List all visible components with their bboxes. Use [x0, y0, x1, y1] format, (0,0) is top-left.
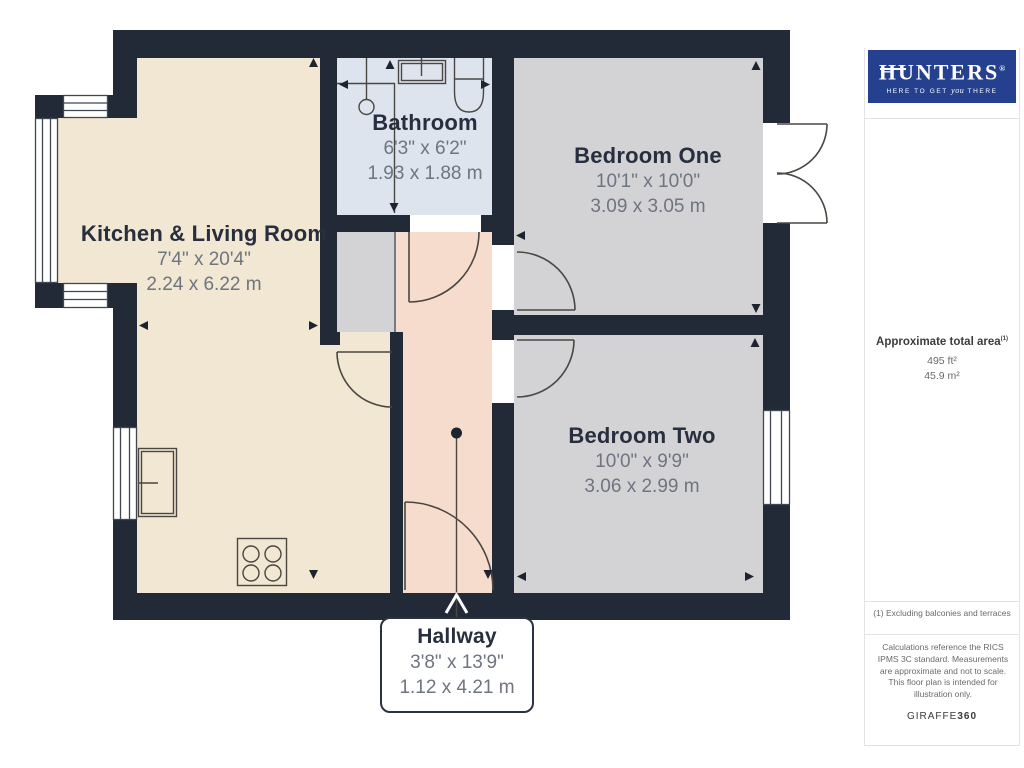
registered-mark-icon: ® — [999, 64, 1005, 73]
room-name: Bathroom — [367, 110, 482, 136]
room-size-imperial: 10'0" x 9'9" — [568, 449, 715, 474]
bay-window-top — [63, 95, 108, 118]
wall-bedrooms-left-lower — [492, 403, 514, 593]
room-label-bedroom-one: Bedroom One 10'1" x 10'0" 3.09 x 3.05 m — [574, 143, 722, 219]
wall-bathroom-bottom-left — [320, 215, 410, 232]
room-size-metric: 3.09 x 3.05 m — [574, 194, 722, 219]
room-size-metric: 1.93 x 1.88 m — [367, 161, 482, 186]
room-name: Hallway — [382, 623, 532, 650]
wall-right-middle — [763, 223, 790, 410]
area-summary: Approximate total area(1) 495 ft² 45.9 m… — [865, 332, 1019, 385]
logo-text: HUNTERS — [879, 59, 999, 84]
bay-window-left — [35, 118, 58, 283]
wall-top — [113, 30, 790, 58]
wall-bedrooms-left-upper — [492, 58, 514, 245]
room-name: Bedroom Two — [568, 423, 715, 449]
logo-tagline: HERE TO GET you THERE — [868, 86, 1016, 95]
area-imperial: 495 ft² — [865, 354, 1019, 370]
room-size-metric: 2.24 x 6.22 m — [81, 272, 327, 297]
footnote-text: (1) Excluding balconies and terraces — [869, 606, 1015, 620]
wall-hallway-left — [390, 345, 403, 593]
area-heading: Approximate total area(1) — [865, 332, 1019, 349]
room-size-imperial: 3'8" x 13'9" — [382, 650, 532, 675]
floor-plan: Kitchen & Living Room 7'4" x 20'4" 2.24 … — [0, 0, 860, 768]
room-label-bathroom: Bathroom 6'3" x 6'2" 1.93 x 1.88 m — [367, 110, 482, 186]
area-heading-text: Approximate total area — [876, 336, 1001, 348]
kitchen-floor-lower — [137, 345, 390, 593]
wall-bottom — [113, 593, 790, 620]
divider — [865, 601, 1019, 602]
wall-kitchen-door-left-stub — [320, 332, 340, 345]
tagline-script: you — [951, 86, 964, 95]
room-size-imperial: 10'1" x 10'0" — [574, 169, 722, 194]
giraffe360-credit: GIRAFFE360 — [865, 710, 1019, 724]
wall-between-bedrooms — [514, 315, 763, 335]
tagline-pre: HERE TO GET — [886, 88, 947, 95]
hallway-floor-upper — [395, 232, 492, 345]
room-size-imperial: 7'4" x 20'4" — [81, 247, 327, 272]
wall-left-middle — [113, 308, 137, 427]
wall-left-upper — [113, 58, 137, 95]
kitchen-window — [113, 427, 137, 520]
bay-corner-top-left — [35, 95, 63, 118]
bedroom-one-french-door-opening — [763, 123, 790, 223]
bay-corner-top-right — [108, 95, 137, 118]
wall-bedrooms-left-middle — [492, 310, 514, 340]
divider — [865, 634, 1019, 635]
credit-brand: GIRAFFE — [907, 711, 957, 722]
room-size-metric: 1.12 x 4.21 m — [382, 675, 532, 700]
logo-strike-line — [880, 68, 906, 70]
wall-right-upper — [763, 58, 790, 123]
area-metric: 45.9 m² — [865, 369, 1019, 385]
kitchen-door-threshold — [337, 332, 390, 345]
bedroom-two-window — [763, 410, 790, 505]
hunters-logo: HUNTERS® HERE TO GET you THERE — [868, 50, 1016, 103]
logo-brand: HUNTERS® — [868, 57, 1016, 84]
wall-right-lower — [763, 505, 790, 593]
room-label-bedroom-two: Bedroom Two 10'0" x 9'9" 3.06 x 2.99 m — [568, 423, 715, 499]
tagline-post: THERE — [968, 88, 998, 95]
wall-kitchen-door-right-stub — [390, 332, 403, 345]
room-size-metric: 3.06 x 2.99 m — [568, 474, 715, 499]
kitchen-floor-upper — [137, 58, 320, 345]
credit-suffix: 360 — [957, 711, 977, 722]
footnote-marker: (1) — [1001, 336, 1008, 342]
room-label-kitchen: Kitchen & Living Room 7'4" x 20'4" 2.24 … — [81, 221, 327, 297]
disclaimer-text: Calculations reference the RICS IPMS 3C … — [873, 642, 1013, 701]
wall-left-lower — [113, 520, 137, 593]
divider — [865, 118, 1019, 119]
floorplan-page: Kitchen & Living Room 7'4" x 20'4" 2.24 … — [0, 0, 1024, 768]
room-label-hallway: Hallway 3'8" x 13'9" 1.12 x 4.21 m — [380, 617, 534, 713]
info-sidebar: HUNTERS® HERE TO GET you THERE Approxima… — [864, 48, 1020, 746]
bay-corner-bottom-left — [35, 283, 63, 308]
cupboard-floor — [337, 232, 395, 332]
hallway-floor-lower — [403, 345, 492, 593]
room-name: Kitchen & Living Room — [81, 221, 327, 247]
wall-bathroom-bottom-right — [481, 215, 492, 232]
room-name: Bedroom One — [574, 143, 722, 169]
room-size-imperial: 6'3" x 6'2" — [367, 136, 482, 161]
